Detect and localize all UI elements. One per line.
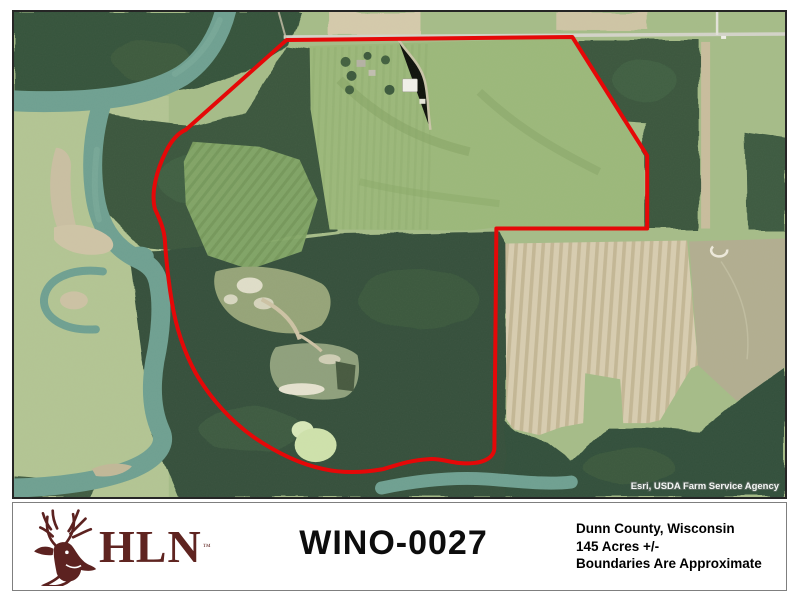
trademark-symbol: ™ xyxy=(203,542,211,551)
detail-disclaimer: Boundaries Are Approximate xyxy=(576,555,780,573)
property-flyer: Esri, USDA Farm Service Agency xyxy=(0,0,800,600)
listing-details: Dunn County, Wisconsin 145 Acres +/- Bou… xyxy=(576,520,786,573)
detail-acreage: 145 Acres +/- xyxy=(576,538,780,556)
aerial-imagery: Esri, USDA Farm Service Agency xyxy=(14,12,785,497)
detail-location: Dunn County, Wisconsin xyxy=(576,520,780,538)
photo-grain xyxy=(14,12,785,497)
aerial-map: Esri, USDA Farm Service Agency xyxy=(12,10,787,499)
logo-wordmark: HLN xyxy=(99,524,202,570)
deer-icon xyxy=(23,508,109,586)
attribution-text: Esri, USDA Farm Service Agency xyxy=(631,481,780,492)
footer-banner: HLN™ WINO-0027 Dunn County, Wisconsin 14… xyxy=(12,502,787,591)
hln-logo: HLN™ xyxy=(13,508,211,586)
listing-id: WINO-0027 xyxy=(211,524,576,569)
